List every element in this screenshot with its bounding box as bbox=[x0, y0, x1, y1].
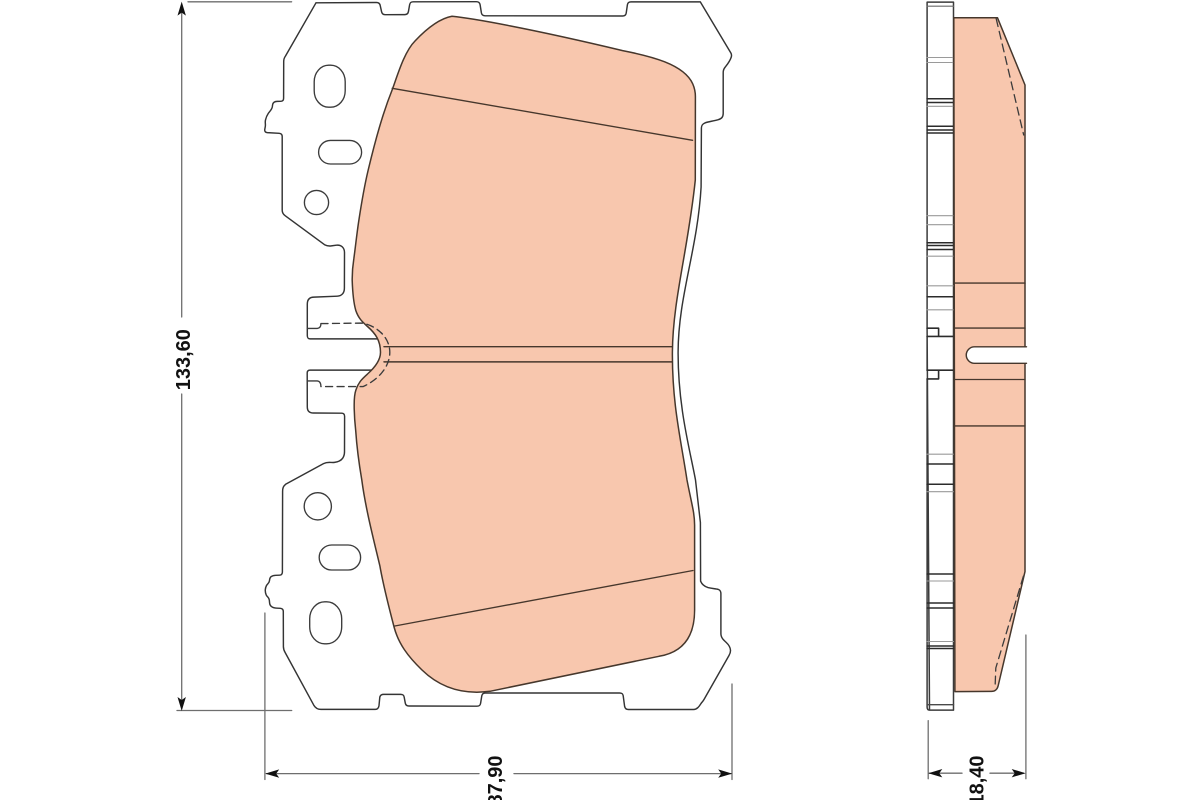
svg-text:18,40: 18,40 bbox=[967, 755, 989, 800]
svg-text:133,60: 133,60 bbox=[173, 329, 195, 390]
svg-text:87,90: 87,90 bbox=[485, 755, 507, 800]
